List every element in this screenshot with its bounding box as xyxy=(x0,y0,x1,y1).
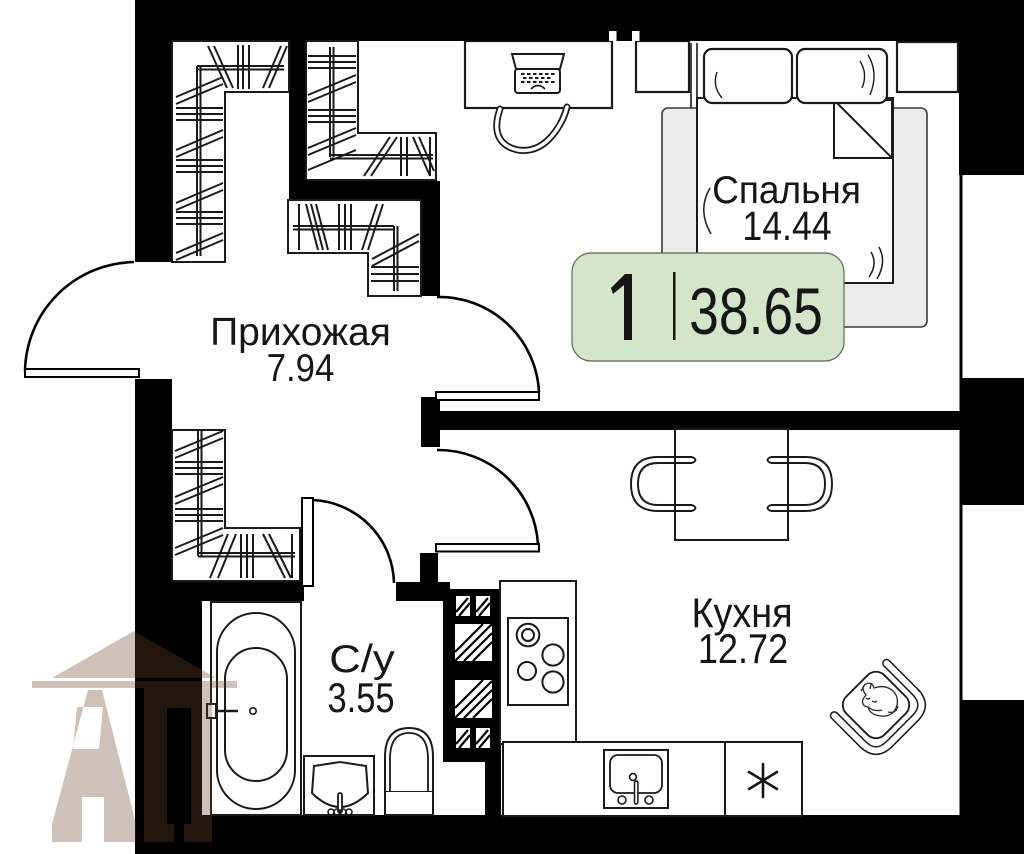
svg-text:7.94: 7.94 xyxy=(267,346,335,389)
svg-text:38.65: 38.65 xyxy=(689,275,823,349)
svg-text:14.44: 14.44 xyxy=(742,204,831,250)
svg-text:12.72: 12.72 xyxy=(698,627,788,673)
svg-text:3.55: 3.55 xyxy=(327,675,394,722)
